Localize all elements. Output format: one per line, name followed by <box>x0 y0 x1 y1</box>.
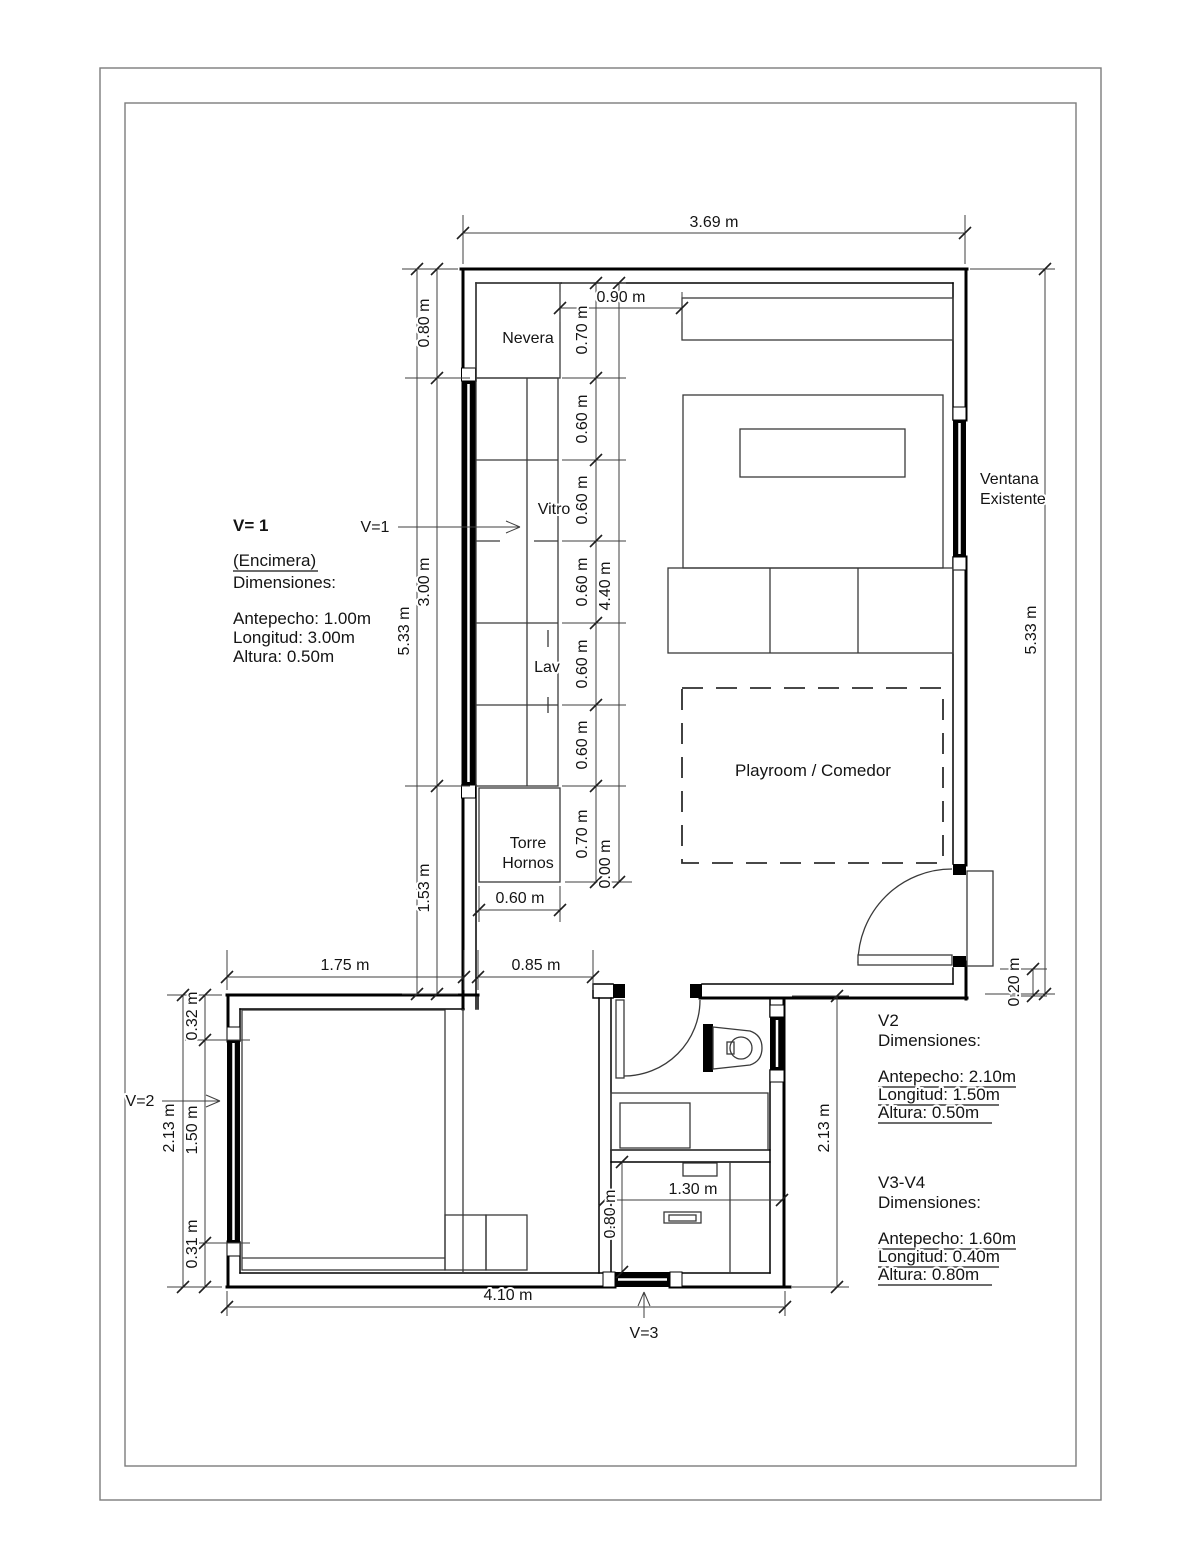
dim-bedroom-chain-2: 0.31 m <box>184 1220 201 1269</box>
dim-left-chain-0: 0.80 m <box>416 299 433 348</box>
dim-bedroom-height: 2.13 m <box>161 1104 178 1153</box>
entry-door-arc <box>858 869 952 963</box>
cooktop-label: Vitro <box>538 501 571 518</box>
bedroom-furniture <box>242 1009 527 1273</box>
v1-arrow <box>398 521 520 533</box>
dim-counter-chain-0: 0.70 m <box>574 306 591 355</box>
v1-note-altura: Altura: 0.50m <box>233 647 334 666</box>
counter-outline <box>476 378 558 786</box>
bathroom-fixtures <box>611 1024 768 1150</box>
v3v4-note-altura: Altura: 0.80m <box>878 1265 979 1284</box>
dim-bedroom-top: 1.75 m <box>321 957 370 974</box>
dim-counter-chain-1: 0.60 m <box>574 395 591 444</box>
bath-door-arc <box>624 1000 700 1076</box>
v3v4-note-heading: V3-V4 <box>878 1173 925 1192</box>
entry-door-jamb-top <box>953 864 966 875</box>
v3-marker: V=3 <box>630 1325 659 1342</box>
bath-door-jamb-left <box>613 984 625 998</box>
v1-marker: V=1 <box>361 519 390 536</box>
oven-label-line1: Torre <box>510 835 547 852</box>
window-existing <box>953 407 966 570</box>
v1-note-subject: (Encimera) <box>233 551 316 570</box>
v1-note-heading: V= 1 <box>233 516 268 535</box>
window-v4 <box>770 1005 784 1082</box>
v3-arrow <box>638 1292 650 1318</box>
dim-top-width: 3.69 m <box>690 214 739 231</box>
dim-counter-chain-4: 0.60 m <box>574 640 591 689</box>
v2-note-dims-label: Dimensiones: <box>878 1031 981 1050</box>
dim-left-chain-1: 3.00 m <box>416 558 433 607</box>
nightstand-2 <box>486 1215 527 1270</box>
top-counter <box>682 298 953 340</box>
window-v3 <box>603 1272 682 1287</box>
v2-note-longitud: Longitud: 1.50m <box>878 1085 1000 1104</box>
v3v4-note-dims-label: Dimensiones: <box>878 1193 981 1212</box>
existing-window-label-line2: Existente <box>980 491 1046 508</box>
dim-counter-chain-6: 0.70 m <box>574 810 591 859</box>
v2-note-altura: Altura: 0.50m <box>878 1103 979 1122</box>
bath-door-leaf <box>616 1000 624 1078</box>
v3v4-note-antepecho: Antepecho: 1.60m <box>878 1229 1016 1248</box>
desk-room-furniture <box>664 1162 730 1273</box>
v2-marker: V=2 <box>126 1093 155 1110</box>
nightstand-1 <box>445 1215 486 1270</box>
bath-door-jamb-right <box>690 984 702 998</box>
v2-note-heading: V2 <box>878 1011 899 1030</box>
v2-note-block: V2 Dimensiones: Antepecho: 2.10m Longitu… <box>878 1011 1016 1123</box>
sofa <box>668 568 953 653</box>
dim-counter-total: 4.40 m <box>597 562 614 611</box>
dim-door-offset: 0.20 m <box>1006 958 1023 1007</box>
window-v1 <box>462 368 476 798</box>
bed <box>242 1010 445 1270</box>
playroom-label: Playroom / Comedor <box>735 761 891 780</box>
dim-bedroom-chain-1: 1.50 m <box>184 1106 201 1155</box>
v1-note-longitud: Longitud: 3.00m <box>233 628 355 647</box>
v2-note-antepecho: Antepecho: 2.10m <box>878 1067 1016 1086</box>
dim-counter-chain-3: 0.60 m <box>574 558 591 607</box>
dining-table <box>740 429 905 477</box>
sink-label: Lav <box>534 659 560 676</box>
toilet-icon <box>703 1024 762 1072</box>
oven-label-line2: Hornos <box>502 855 554 872</box>
dim-desk-depth: 0.80 m <box>602 1190 619 1239</box>
kitchen-fixtures <box>476 283 953 882</box>
entry-door-jamb-bottom <box>953 956 966 967</box>
shower-inner <box>620 1103 690 1148</box>
fridge-label: Nevera <box>502 330 554 347</box>
floor-plan-drawing: 3.69 m 5.33 m 0.80 m 3.00 m 1.53 m 0.90 … <box>0 0 1200 1553</box>
dim-counter-zero: 0.00 m <box>597 840 614 889</box>
dim-desk-width: 1.30 m <box>669 1181 718 1198</box>
v3-v4-note-block: V3-V4 Dimensiones: Antepecho: 1.60m Long… <box>878 1173 1016 1285</box>
window-v2 <box>227 1027 240 1256</box>
rug <box>683 395 943 568</box>
v1-note-antepecho: Antepecho: 1.00m <box>233 609 371 628</box>
living-furniture <box>668 395 953 863</box>
dim-counter-chain-2: 0.60 m <box>574 476 591 525</box>
floor-plan-sheet: 3.69 m 5.33 m 0.80 m 3.00 m 1.53 m 0.90 … <box>0 0 1200 1553</box>
v1-note-dims-label: Dimensiones: <box>233 573 336 592</box>
v3v4-note-longitud: Longitud: 0.40m <box>878 1247 1000 1266</box>
dim-passage: 0.85 m <box>512 957 561 974</box>
v1-note-block: V= 1 (Encimera) Dimensiones: Antepecho: … <box>233 516 371 666</box>
dim-counter-offset: 0.90 m <box>597 289 646 306</box>
dimension-lines <box>162 215 1055 1318</box>
dim-right-overall: 5.33 m <box>1023 606 1040 655</box>
dim-wing-right: 2.13 m <box>816 1104 833 1153</box>
existing-window-label-line1: Ventana <box>980 471 1039 488</box>
dim-wing-bottom: 4.10 m <box>484 1287 533 1304</box>
shelf <box>683 1163 717 1176</box>
dim-counter-chain-5: 0.60 m <box>574 721 591 770</box>
entry-door-leaf <box>858 955 952 965</box>
dim-left-overall: 5.33 m <box>396 607 413 656</box>
dim-bedroom-chain-0: 0.32 m <box>184 992 201 1041</box>
dim-oven-width: 0.60 m <box>496 890 545 907</box>
dim-left-chain-2: 1.53 m <box>416 864 433 913</box>
entry-landing <box>967 871 993 966</box>
